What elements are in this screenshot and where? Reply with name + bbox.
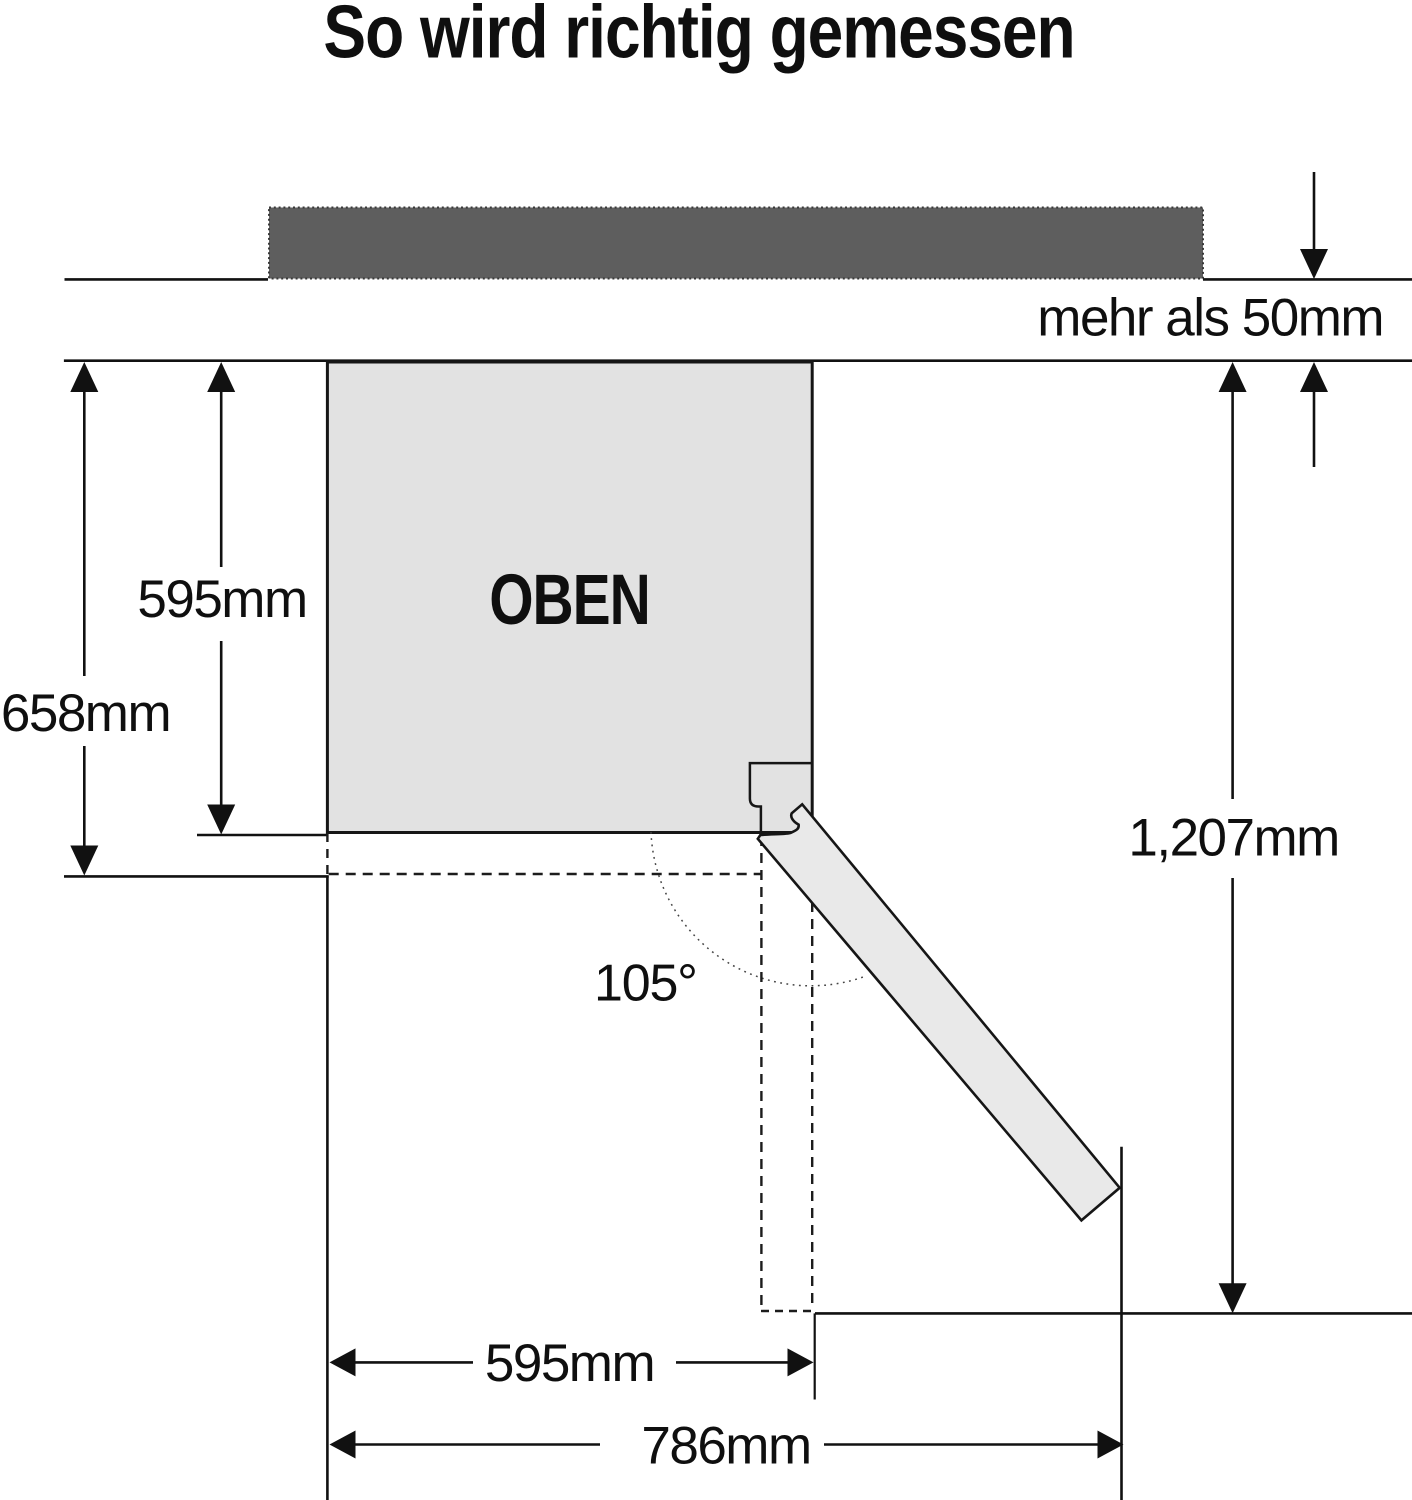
svg-text:595mm: 595mm	[137, 570, 306, 629]
svg-text:OBEN: OBEN	[489, 560, 650, 640]
svg-text:658mm: 658mm	[1, 684, 170, 743]
svg-text:1,207mm: 1,207mm	[1128, 808, 1338, 867]
svg-text:786mm: 786mm	[641, 1417, 810, 1476]
svg-text:105°: 105°	[594, 955, 697, 1013]
svg-text:595mm: 595mm	[485, 1334, 654, 1393]
svg-text:So wird richtig gemessen: So wird richtig gemessen	[323, 0, 1074, 74]
svg-text:mehr als 50mm: mehr als 50mm	[1037, 288, 1383, 347]
